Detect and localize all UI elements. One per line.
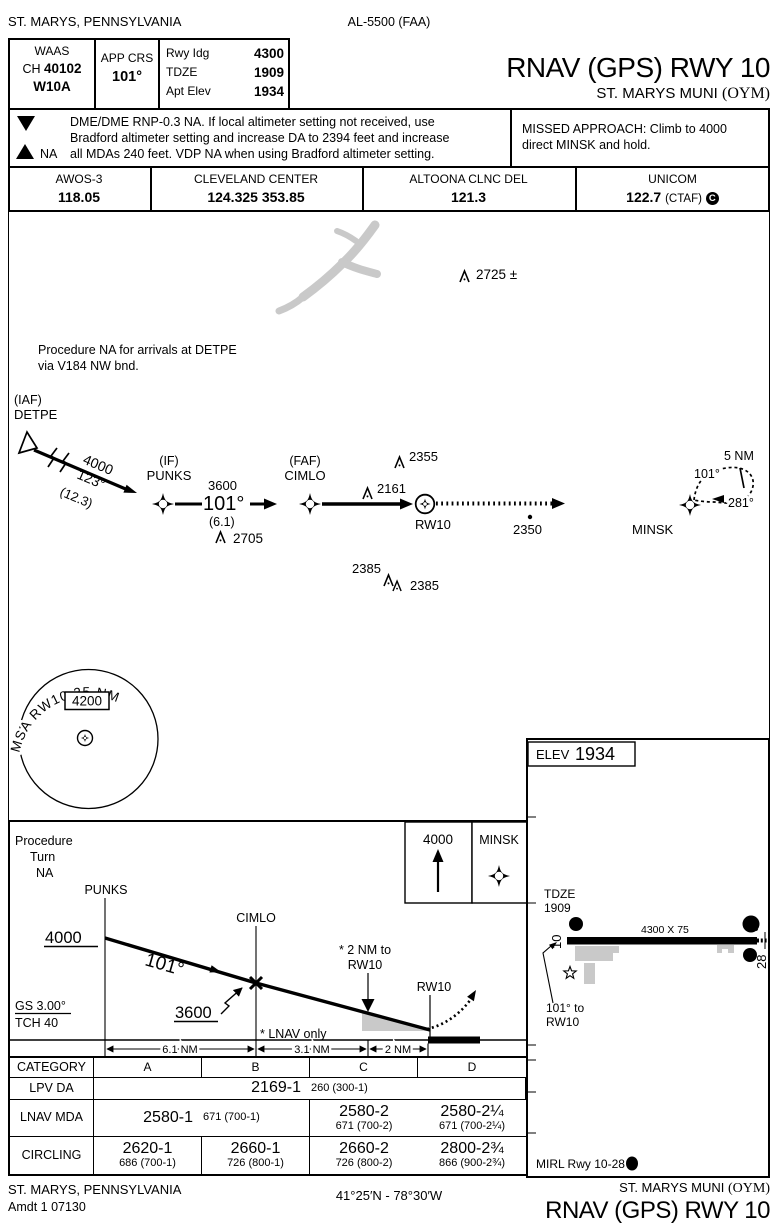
leg1-distance: (12.3) — [58, 484, 95, 511]
minima-table: CATEGORY A B C D LPV DA 2169-1 260 (300-… — [8, 1056, 528, 1176]
waas-id: W10A — [10, 79, 94, 94]
waas-channel: CH 40102 — [10, 61, 94, 76]
approach-light-icon: A 4 — [743, 916, 760, 934]
cimlo-waypoint-icon — [299, 493, 321, 515]
obstacle-icon — [363, 488, 372, 499]
distance-3-1: 3.1 NM — [294, 1044, 329, 1056]
obstacle-2161: 2161 — [377, 481, 406, 496]
circling-b-minima: 2660-1 726 (800-1) — [202, 1137, 310, 1174]
obstacle-2355: 2355 — [409, 449, 438, 464]
tch-value: TCH 40 — [15, 1016, 58, 1030]
unicom-value: 122.7 (CTAF) C — [577, 189, 768, 205]
procedure-turn-3: NA — [36, 866, 54, 880]
clnc-value: 121.3 — [364, 189, 573, 205]
papi-left-icon: P — [569, 917, 583, 931]
obstacle-2705: 2705 — [233, 531, 263, 546]
lpv-row-label: LPV DA — [10, 1078, 94, 1100]
river-terrain — [279, 225, 377, 311]
mirl-note: MIRL Rwy 10-28 — [536, 1157, 625, 1171]
lnav-c-minima: 2580-2 671 (700-2) — [310, 1100, 418, 1137]
lpv-da: 2169-1 — [251, 1080, 301, 1097]
obstacle-2725: 2725 ± — [476, 267, 517, 282]
distance-6-1: 6.1 NM — [162, 1044, 197, 1056]
iaf-label: (IAF) — [14, 393, 42, 407]
category-b: B — [202, 1058, 310, 1078]
obstacle-2385b: 2385 — [410, 578, 439, 593]
procedure-turn-2: Turn — [30, 850, 55, 864]
waas-cell: WAAS CH 40102 W10A — [10, 42, 94, 106]
msa-diagram: MSA RW10 25 NM 4200 — [8, 670, 158, 809]
lnav-d-minima: 2580-2¼ 671 (700-2¼) — [418, 1100, 526, 1137]
app-crs-cell: APP CRS 101° — [96, 42, 158, 106]
final-course-arrow — [400, 499, 413, 510]
lnav-ab-hat: 671 (700-1) — [203, 1112, 260, 1124]
obstacle-icon — [216, 532, 225, 543]
footer-airport-name: ST. MARYS MUNI — [619, 1180, 724, 1195]
obstacle-icon — [384, 575, 393, 586]
leg-detpe-punks: 4000 123° (12.3) — [34, 448, 137, 511]
elev-value: 1934 — [575, 744, 615, 764]
faf-name: CIMLO — [284, 468, 325, 483]
vdp-note-1: * 2 NM to — [339, 943, 391, 957]
note-line-2: Bradford altimeter setting and increase … — [70, 130, 506, 146]
center-label: CLEVELAND CENTER — [152, 172, 360, 186]
hold-limit-tick — [740, 468, 744, 488]
profile-altitude-4000: 4000 — [45, 929, 82, 947]
airport-sketch: ELEV 1934 4300 X 75 10 28 P A 4 P — [528, 740, 770, 1178]
profile-course: 101° — [143, 950, 187, 981]
runway-dimensions: 4300 X 75 — [641, 924, 689, 936]
center-value: 124.325 353.85 — [152, 189, 360, 205]
unicom-cell: UNICOM 122.7 (CTAF) C — [577, 172, 768, 205]
rw10-label: RW10 — [415, 517, 451, 532]
vdp-arrow — [362, 999, 375, 1012]
glideslope-angle: GS 3.00° — [15, 999, 66, 1013]
tdze-label: TDZE — [166, 65, 197, 80]
graticule-ticks — [528, 817, 536, 1133]
papi-left-letter: P — [573, 920, 580, 931]
missed-climb-arrow — [467, 990, 476, 1001]
leg2-distance: (6.1) — [209, 515, 235, 529]
profile-altitude-3600: 3600 — [175, 1004, 212, 1022]
spot-elevation-dot — [528, 515, 532, 519]
missed-approach-arrow — [552, 498, 565, 509]
minsk-waypoint-icon — [679, 494, 701, 516]
circling-a-hat: 686 (700-1) — [119, 1158, 176, 1170]
punks-waypoint-icon — [152, 493, 174, 515]
obstacle-2350: 2350 — [513, 522, 542, 537]
iaf-name: DETPE — [14, 407, 58, 422]
missed-approach-boxes: 4000 MINSK — [405, 822, 527, 903]
profile-rw10-label: RW10 — [417, 980, 452, 994]
circling-row-label: CIRCLING — [10, 1137, 94, 1174]
glidepath-arrow — [209, 965, 221, 972]
awos-label: AWOS-3 — [10, 172, 148, 186]
missed-line-1: MISSED APPROACH: Climb to 4000 — [522, 121, 762, 137]
altitude-pointer — [221, 988, 242, 1014]
hold-leg-length: 5 NM — [724, 449, 754, 463]
course-to-rw10-2: RW10 — [546, 1015, 579, 1029]
circling-d-minima: 2800-2¾ 866 (900-2¾) — [418, 1137, 526, 1174]
clnc-label: ALTOONA CLNC DEL — [364, 172, 573, 186]
lnav-d-hat: 671 (700-2¼) — [439, 1121, 505, 1133]
profile-punks-label: PUNKS — [84, 883, 127, 897]
ctaf-circle-icon: C — [706, 192, 719, 205]
airport-name: ST. MARYS MUNI (OYM) — [506, 85, 770, 103]
approach-plate: ST. MARYS, PENNSYLVANIA AL-5500 (FAA) WA… — [0, 0, 778, 1232]
apron-buildings — [575, 945, 734, 984]
procedure-title: RNAV (GPS) RWY 10 — [506, 52, 770, 84]
category-header: CATEGORY — [10, 1058, 94, 1078]
footer-title-block: ST. MARYS MUNI (OYM) RNAV (GPS) RWY 10 — [545, 1180, 770, 1225]
notes-divider — [510, 110, 512, 166]
ma-altitude: 4000 — [423, 832, 453, 847]
missed-line-2: direct MINSK and hold. — [522, 137, 762, 153]
hold-outbound-course: 101° — [694, 467, 720, 481]
hold-inbound-course: 281° — [728, 496, 754, 510]
msa-altitude: 4200 — [72, 694, 102, 709]
procedure-notes: DME/DME RNP-0.3 NA. If local altimeter s… — [70, 114, 506, 162]
airport-name-text: ST. MARYS MUNI — [596, 85, 717, 102]
tdze-value: 1909 — [254, 65, 284, 80]
runway-data-cell: Rwy Idg4300 TDZE1909 Apt Elev1934 — [166, 44, 284, 106]
pilot-controlled-lighting-icon: L — [626, 1157, 638, 1171]
leg2-course: 101° — [203, 493, 244, 515]
profile-cimlo-label: CIMLO — [236, 911, 276, 925]
lnav-row-label: LNAV MDA — [10, 1100, 94, 1137]
ma-fix: MINSK — [479, 833, 519, 847]
faf-label: (FAF) — [289, 454, 320, 468]
missed-approach-text: MISSED APPROACH: Climb to 4000 direct MI… — [522, 121, 762, 153]
lnav-c-hat: 671 (700-2) — [336, 1121, 393, 1133]
minsk-label: MINSK — [632, 522, 674, 537]
arrival-note-2: via V184 NW bnd. — [38, 359, 139, 373]
beacon-star-icon — [564, 967, 576, 979]
category-c: C — [310, 1058, 418, 1078]
awos-cell: AWOS-3 118.05 — [10, 172, 148, 205]
plan-view: Procedure NA for arrivals at DETPE via V… — [8, 212, 770, 822]
obstacle-icon — [395, 457, 404, 468]
elev-label: ELEV — [536, 747, 570, 762]
alternate-symbol-letter: A — [22, 150, 29, 160]
sketch-tdze-value: 1909 — [544, 901, 571, 915]
lpv-minima: 2169-1 260 (300-1) — [94, 1078, 526, 1100]
course-to-rw10-1: 101° to — [546, 1001, 584, 1015]
circling-c-minima: 2660-2 726 (800-2) — [310, 1137, 418, 1174]
obstacle-icon — [393, 581, 401, 591]
minsk-hold: 5 NM 101° 281° — [694, 449, 754, 510]
channel-prefix: CH — [22, 62, 40, 76]
title-block: RNAV (GPS) RWY 10 ST. MARYS MUNI (OYM) — [506, 52, 770, 103]
clnc-cell: ALTOONA CLNC DEL 121.3 — [364, 172, 573, 205]
circling-a-minima: 2620-1 686 (700-1) — [94, 1137, 202, 1174]
waas-label: WAAS — [10, 44, 94, 58]
unicom-freq: 122.7 — [626, 189, 661, 205]
lnav-only-note: * LNAV only — [260, 1027, 327, 1041]
vdp-note-2: RW10 — [348, 958, 383, 972]
if-label: (IF) — [159, 454, 178, 468]
profile-runway-bar — [428, 1037, 480, 1044]
airport-id: (OYM) — [722, 85, 770, 102]
taxiway-stub — [717, 945, 734, 953]
papi-right-letter: P — [747, 951, 754, 962]
channel-value: 40102 — [44, 61, 82, 76]
approach-light-letter: A — [745, 920, 752, 931]
runway-10-28 — [567, 937, 757, 945]
category-a: A — [94, 1058, 202, 1078]
circling-d-mda: 2800-2¾ — [440, 1141, 503, 1158]
circling-c-hat: 726 (800-2) — [336, 1158, 393, 1170]
distance-2: 2 NM — [385, 1044, 411, 1056]
apt-elev-label: Apt Elev — [166, 84, 211, 99]
lnav-ab-mda: 2580-1 — [143, 1110, 193, 1127]
takeoff-symbol-letter: T — [23, 117, 29, 128]
apt-elev-value: 1934 — [254, 84, 284, 99]
footer-airport: ST. MARYS MUNI (OYM) — [545, 1180, 770, 1197]
category-d: D — [418, 1058, 526, 1078]
lnav-c-mda: 2580-2 — [339, 1104, 389, 1121]
leg-punks-cimlo: 3600 101° (6.1) — [175, 478, 277, 529]
awos-value: 118.05 — [10, 189, 148, 205]
if-name: PUNKS — [147, 468, 192, 483]
pcl-letter: L — [629, 1159, 635, 1170]
center-cell: CLEVELAND CENTER 124.325 353.85 — [152, 172, 360, 205]
footer-airport-id: (OYM) — [728, 1181, 770, 1196]
missed-climb-track — [427, 999, 471, 1029]
rw10-fix-icon — [416, 495, 435, 514]
sketch-tdze-label: TDZE — [544, 887, 575, 901]
final-course-pointer — [543, 942, 557, 1003]
circling-d-hat: 866 (900-2¾) — [439, 1158, 505, 1170]
note-line-1: DME/DME RNP-0.3 NA. If local altimeter s… — [70, 114, 506, 130]
lnav-ab-minima: 2580-1 671 (700-1) — [94, 1100, 310, 1137]
footer-procedure-title: RNAV (GPS) RWY 10 — [545, 1197, 770, 1225]
procedure-ref: AL-5500 (FAA) — [0, 15, 778, 29]
rwy-ldg-row: Rwy Idg4300 — [166, 46, 284, 61]
alternate-na-text: NA — [40, 147, 58, 161]
arrival-note-1: Procedure NA for arrivals at DETPE — [38, 343, 237, 357]
lpv-hat: 260 (300-1) — [311, 1083, 368, 1095]
briefing-divider-2 — [158, 40, 160, 108]
circling-b-mda: 2660-1 — [231, 1141, 281, 1158]
ctaf-label: (CTAF) — [665, 193, 702, 205]
circling-b-hat: 726 (800-1) — [227, 1158, 284, 1170]
tdze-row: TDZE1909 — [166, 65, 284, 80]
leg2-altitude: 3600 — [208, 478, 237, 493]
unicom-label: UNICOM — [577, 172, 768, 186]
rwy-ldg-label: Rwy Idg — [166, 46, 209, 61]
note-line-3: all MDAs 240 feet. VDP NA when using Bra… — [70, 146, 506, 162]
msa-center-icon — [78, 731, 93, 746]
circling-c-mda: 2660-2 — [339, 1141, 389, 1158]
profile-view: Procedure Turn NA PUNKS CIMLO 4000 3600 … — [8, 822, 528, 1058]
obstacle-icon — [460, 271, 469, 282]
app-crs-value: 101° — [96, 69, 158, 85]
circling-a-mda: 2620-1 — [123, 1141, 173, 1158]
rwy-ldg-value: 4300 — [254, 46, 284, 61]
app-crs-label: APP CRS — [96, 51, 158, 65]
apt-elev-row: Apt Elev1934 — [166, 84, 284, 99]
notes-symbols: T A NA — [14, 114, 66, 164]
papi-right-icon: P — [743, 948, 757, 962]
obstacle-2385a: 2385 — [352, 561, 381, 576]
lnav-d-mda: 2580-2¼ — [440, 1104, 503, 1121]
procedure-turn-1: Procedure — [15, 834, 73, 848]
